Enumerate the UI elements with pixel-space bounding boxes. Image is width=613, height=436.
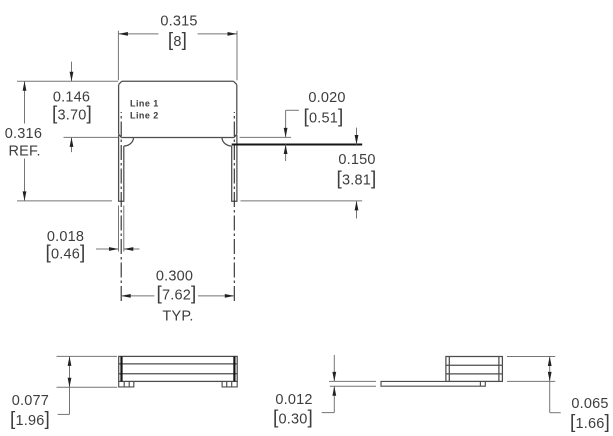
svg-text:[3.81]: [3.81] [337,169,377,190]
svg-text:Line 1: Line 1 [130,98,159,108]
svg-text:0.316: 0.316 [5,126,42,142]
svg-text:[1.66]: [1.66] [570,412,610,433]
svg-text:TYP.: TYP. [162,309,193,325]
svg-text:Line 2: Line 2 [130,111,159,121]
svg-text:[0.51]: [0.51] [304,107,344,128]
svg-text:0.150: 0.150 [338,152,375,168]
svg-text:REF.: REF. [9,143,41,159]
svg-text:0.020: 0.020 [308,90,345,106]
svg-text:0.146: 0.146 [53,89,90,105]
svg-text:[0.30]: [0.30] [273,408,313,429]
svg-text:0.077: 0.077 [12,393,49,409]
svg-text:0.018: 0.018 [47,229,84,245]
svg-text:[0.46]: [0.46] [46,243,86,264]
svg-text:0.065: 0.065 [571,396,608,412]
svg-text:[1.96]: [1.96] [10,409,50,430]
svg-text:[3.70]: [3.70] [52,104,92,125]
svg-text:[7.62]: [7.62] [157,284,197,305]
svg-text:0.012: 0.012 [275,392,312,408]
svg-text:0.315: 0.315 [160,14,197,30]
svg-text:0.300: 0.300 [156,269,193,285]
svg-text:[8]: [8] [168,30,187,51]
